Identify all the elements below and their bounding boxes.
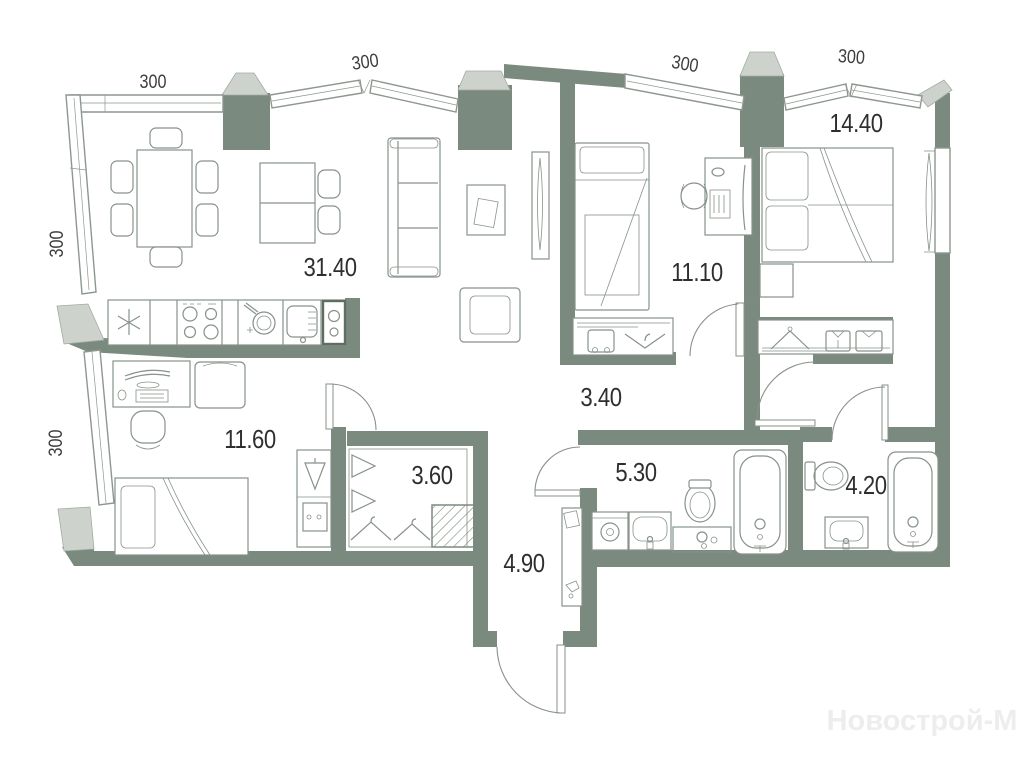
kitchen-sink-icon	[287, 306, 317, 337]
window-left-upper	[66, 95, 96, 294]
bathroom2-fixtures	[805, 452, 938, 552]
label-wardrobe: 3.60	[411, 461, 452, 490]
single-bed-icon	[115, 478, 248, 555]
window-bay-left	[270, 80, 362, 108]
floor-plan-svg: 31.40 11.10 14.40 3.40 11.60 3.60 4.90 5…	[0, 0, 1024, 768]
watermark: Новострой-М	[827, 705, 1018, 737]
dim-left-lower: 300	[45, 429, 67, 456]
door-leaf-entry	[557, 645, 565, 713]
casement-icon	[924, 151, 935, 252]
window-bay-right	[370, 80, 458, 112]
label-bedroom2: 14.40	[829, 109, 882, 138]
door-arc-bedroom1	[690, 304, 738, 356]
label-entry: 4.90	[503, 549, 544, 578]
bedroom3-furniture	[113, 361, 331, 555]
wall-bath1-bath2	[788, 430, 803, 565]
pillar-cap-3	[740, 52, 784, 76]
nightstand-icon	[760, 264, 793, 297]
door-leaf-bedroom3	[326, 384, 333, 429]
entry-hall-furniture	[562, 508, 582, 606]
left-bottom-ledge	[58, 507, 94, 551]
pillar-cap-2	[458, 71, 510, 90]
island-table	[260, 163, 340, 243]
door-arc-bedroom2	[757, 362, 815, 420]
sofa	[388, 138, 440, 277]
hanger-icon	[394, 519, 430, 540]
dining-table-set	[111, 128, 218, 267]
bed-icon	[575, 143, 649, 310]
desk-icon	[113, 361, 190, 407]
dim-bedroom2: 300	[837, 45, 866, 68]
chair-icon	[150, 128, 182, 148]
door-leaf-bedroom2	[755, 420, 815, 426]
label-corridor: 3.40	[580, 383, 621, 412]
shaft-hatch	[432, 505, 487, 547]
dim-bedroom1: 300	[670, 51, 700, 77]
label-bathroom2: 4.20	[845, 471, 886, 500]
hanger-icon	[351, 517, 391, 540]
dim-top-bay: 300	[350, 49, 380, 74]
chair-icon	[111, 204, 133, 236]
door-leaf-bathroom2	[882, 385, 888, 440]
hob-unit	[323, 301, 345, 344]
sink-icon	[629, 512, 671, 550]
toilet-icon	[685, 484, 715, 522]
door-arc-bedroom3	[330, 384, 376, 430]
tv-cabinet	[532, 152, 549, 259]
pillar-cap-1	[222, 73, 268, 95]
label-bedroom3: 11.60	[224, 425, 276, 454]
chair-icon	[196, 161, 218, 193]
coffee-table	[467, 185, 505, 235]
pillar-2	[458, 85, 512, 150]
door-leaf-bedroom1	[736, 303, 744, 356]
chair-icon	[150, 247, 182, 267]
cabinet-icon	[673, 527, 731, 552]
hanger-icon	[352, 455, 375, 477]
label-bedroom1: 11.10	[671, 258, 723, 287]
label-bathroom1: 5.30	[615, 458, 656, 487]
chair-icon	[111, 161, 133, 193]
bedroom2-furniture	[758, 148, 893, 354]
dim-top-left: 300	[140, 71, 167, 93]
door-arc-bathroom1	[535, 447, 580, 492]
chair-icon	[196, 204, 218, 236]
pillar-1	[223, 93, 270, 150]
door-leaf-bathroom1	[535, 490, 580, 496]
pillar-3	[740, 74, 784, 147]
stool-icon	[318, 206, 340, 234]
office-chair-icon	[131, 411, 165, 443]
door-arc-entry	[497, 647, 561, 713]
left-mid-ledge	[57, 304, 104, 344]
office-chair-icon	[681, 183, 707, 209]
window-top-left	[70, 95, 223, 112]
bedroom1-furniture	[573, 143, 752, 355]
door-arc-bathroom2	[832, 387, 885, 440]
armchair	[460, 288, 520, 342]
armchair-icon	[195, 362, 245, 408]
stool-icon	[318, 170, 340, 198]
dim-left-upper: 300	[46, 230, 68, 257]
label-living: 31.40	[303, 253, 356, 282]
wardrobe-unit	[297, 450, 331, 547]
floor-plan: 31.40 11.10 14.40 3.40 11.60 3.60 4.90 5…	[0, 0, 1024, 768]
window-right-wall	[935, 148, 950, 253]
hanger-icon	[352, 490, 375, 512]
kitchen-counter	[108, 300, 345, 345]
